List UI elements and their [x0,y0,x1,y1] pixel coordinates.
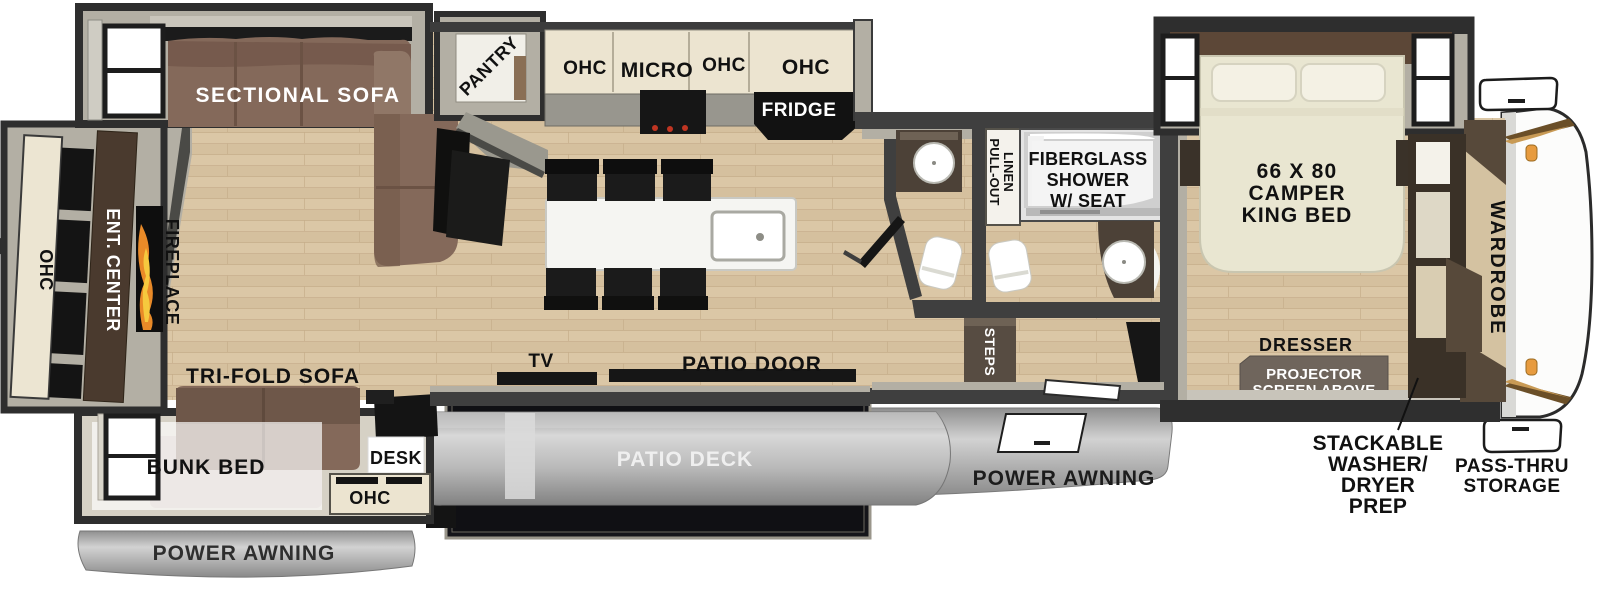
svg-text:BUNK BED: BUNK BED [147,456,266,479]
svg-text:66 X 80: 66 X 80 [1257,160,1338,183]
svg-text:W/ SEAT: W/ SEAT [1050,191,1126,211]
svg-text:POWER AWNING: POWER AWNING [973,467,1156,490]
svg-text:STEPS: STEPS [982,328,998,376]
svg-text:CAMPER: CAMPER [1248,182,1345,205]
svg-text:TV: TV [528,351,553,372]
svg-text:PREP: PREP [1349,495,1407,518]
svg-text:ENT. CENTER: ENT. CENTER [103,208,123,332]
svg-text:LINEN: LINEN [1001,152,1016,192]
svg-text:SECTIONAL SOFA: SECTIONAL SOFA [196,84,401,107]
svg-text:MICRO: MICRO [621,59,694,82]
svg-text:STORAGE: STORAGE [1463,476,1560,497]
svg-text:PATIO DOOR: PATIO DOOR [682,353,822,376]
svg-text:PATIO DECK: PATIO DECK [617,448,753,471]
svg-text:WASHER/: WASHER/ [1328,453,1428,476]
svg-text:PULL-OUT: PULL-OUT [987,138,1002,205]
svg-text:OHC: OHC [36,249,56,291]
svg-text:STACKABLE: STACKABLE [1313,432,1444,455]
svg-text:PROJECTOR: PROJECTOR [1266,366,1362,383]
svg-text:OHC: OHC [349,488,391,508]
svg-text:FIBERGLASS: FIBERGLASS [1028,149,1147,169]
svg-text:KING BED: KING BED [1242,204,1353,227]
svg-text:PASS-THRU: PASS-THRU [1455,456,1569,477]
svg-text:FIREPLACE: FIREPLACE [162,219,182,326]
svg-text:WARDROBE: WARDROBE [1486,201,1508,336]
svg-text:OHC: OHC [702,55,746,76]
svg-text:OHC: OHC [782,56,830,79]
svg-text:DRESSER: DRESSER [1259,335,1353,355]
svg-text:FRIDGE: FRIDGE [762,100,837,121]
svg-text:TRI-FOLD SOFA: TRI-FOLD SOFA [186,365,360,388]
svg-text:POWER AWNING: POWER AWNING [153,542,336,565]
svg-text:SHOWER: SHOWER [1047,170,1130,190]
svg-text:DRYER: DRYER [1341,474,1415,497]
svg-text:DESK: DESK [370,448,422,468]
svg-text:OHC: OHC [563,58,607,79]
